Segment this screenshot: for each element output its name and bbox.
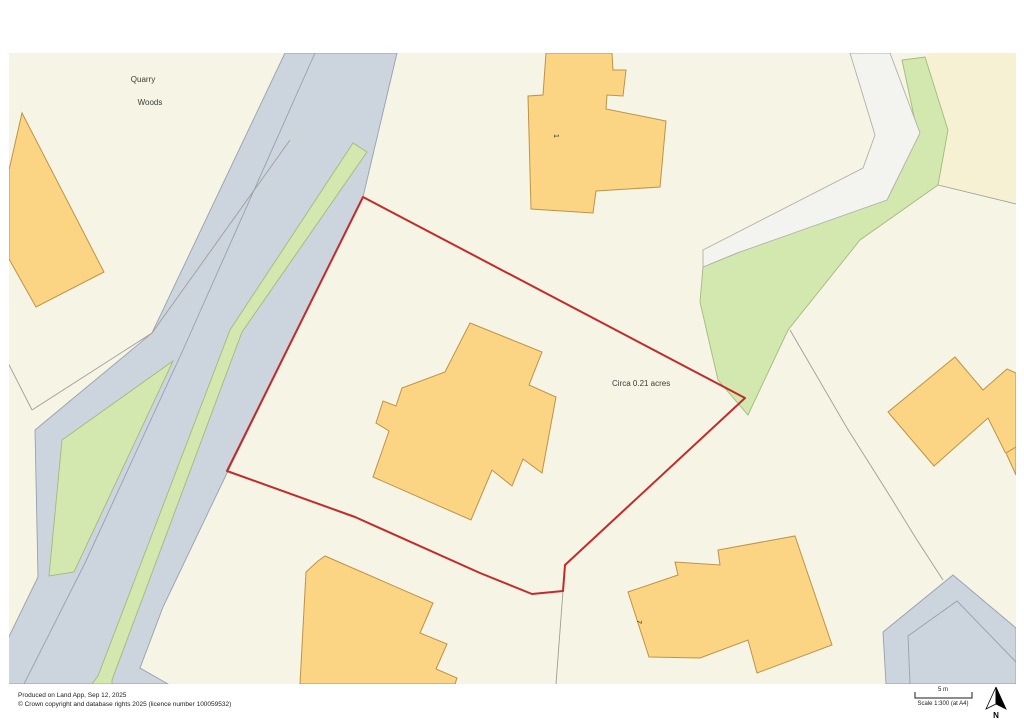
area-annotation: Circa 0.21 acres: [612, 379, 670, 388]
north-arrow-left-half: [986, 687, 996, 709]
building-number-7-label: 7: [635, 620, 642, 625]
scale-bar: 5 m Scale 1:300 (at A4): [915, 687, 972, 707]
building-number-1-label: 1: [552, 134, 559, 138]
north-arrow-icon: N: [986, 687, 1006, 720]
land-app-map-export: Quarry Woods Circa 0.21 acres 1 7 Produc…: [0, 0, 1024, 724]
footer: Produced on Land App, Sep 12, 2025 © Cro…: [18, 687, 1006, 720]
produced-attribution: Produced on Land App, Sep 12, 2025: [18, 692, 127, 699]
place-label-woods: Woods: [138, 98, 163, 107]
place-label-quarry: Quarry: [131, 75, 155, 84]
north-arrow-right-half: [996, 687, 1006, 709]
north-label: N: [993, 711, 999, 720]
scale-distance-label: 5 m: [938, 687, 948, 693]
scale-ratio-label: Scale 1:300 (at A4): [917, 701, 968, 707]
map-canvas: Quarry Woods Circa 0.21 acres 1 7: [0, 53, 1016, 684]
copyright-attribution: © Crown copyright and database rights 20…: [18, 700, 231, 708]
